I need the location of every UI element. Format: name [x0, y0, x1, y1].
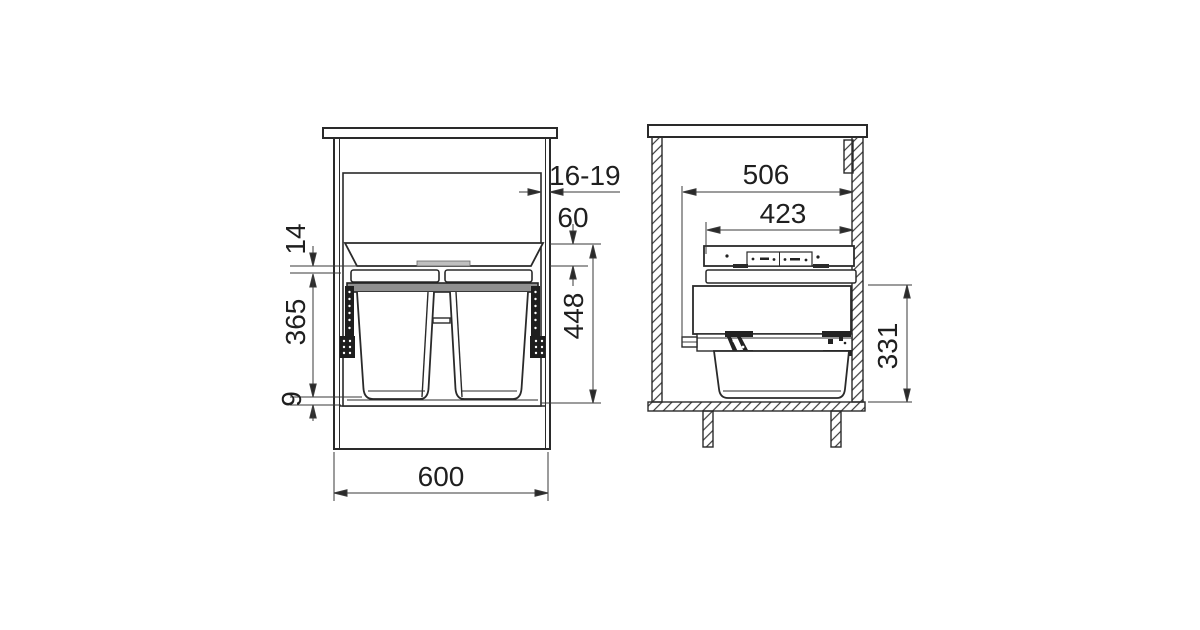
- dim-frame-depth-label: 423: [753, 198, 813, 230]
- dim-door-thickness-label: 16-19: [549, 160, 621, 192]
- frame-rim: [347, 283, 538, 292]
- drawing-linework: [0, 0, 1200, 630]
- bin-body-side: [693, 286, 851, 334]
- cabinet-side-wall: [652, 137, 662, 402]
- dim-bin-height-label: 365: [280, 292, 312, 352]
- dim-lid-gap-label: 14: [280, 219, 312, 259]
- bin-lid-right: [445, 270, 532, 282]
- bin-lid-left: [351, 270, 439, 282]
- countertop: [323, 128, 557, 138]
- cabinet-leg-right: [831, 411, 841, 447]
- dim-unit-height-label: 331: [872, 316, 904, 376]
- side-countertop: [648, 125, 867, 137]
- dim-overall-height-label: 448: [558, 286, 590, 346]
- lid-center-bar: [417, 261, 470, 266]
- cabinet-floor: [648, 402, 865, 411]
- back-fixing-rail: [844, 140, 853, 173]
- installation-drawing: 16-19 60 14 365 9 448 600 506 423 331: [0, 0, 1200, 630]
- dim-cabinet-width-label: 600: [411, 461, 471, 493]
- dim-top-clearance-label: 60: [553, 202, 593, 234]
- cabinet-leg-left: [703, 411, 713, 447]
- dim-min-depth-label: 506: [736, 159, 796, 191]
- bin-tub-side: [714, 351, 849, 398]
- mounting-plate: [704, 246, 854, 268]
- lid-tray: [706, 270, 856, 283]
- dim-bottom-clearance-label: 9: [276, 379, 308, 419]
